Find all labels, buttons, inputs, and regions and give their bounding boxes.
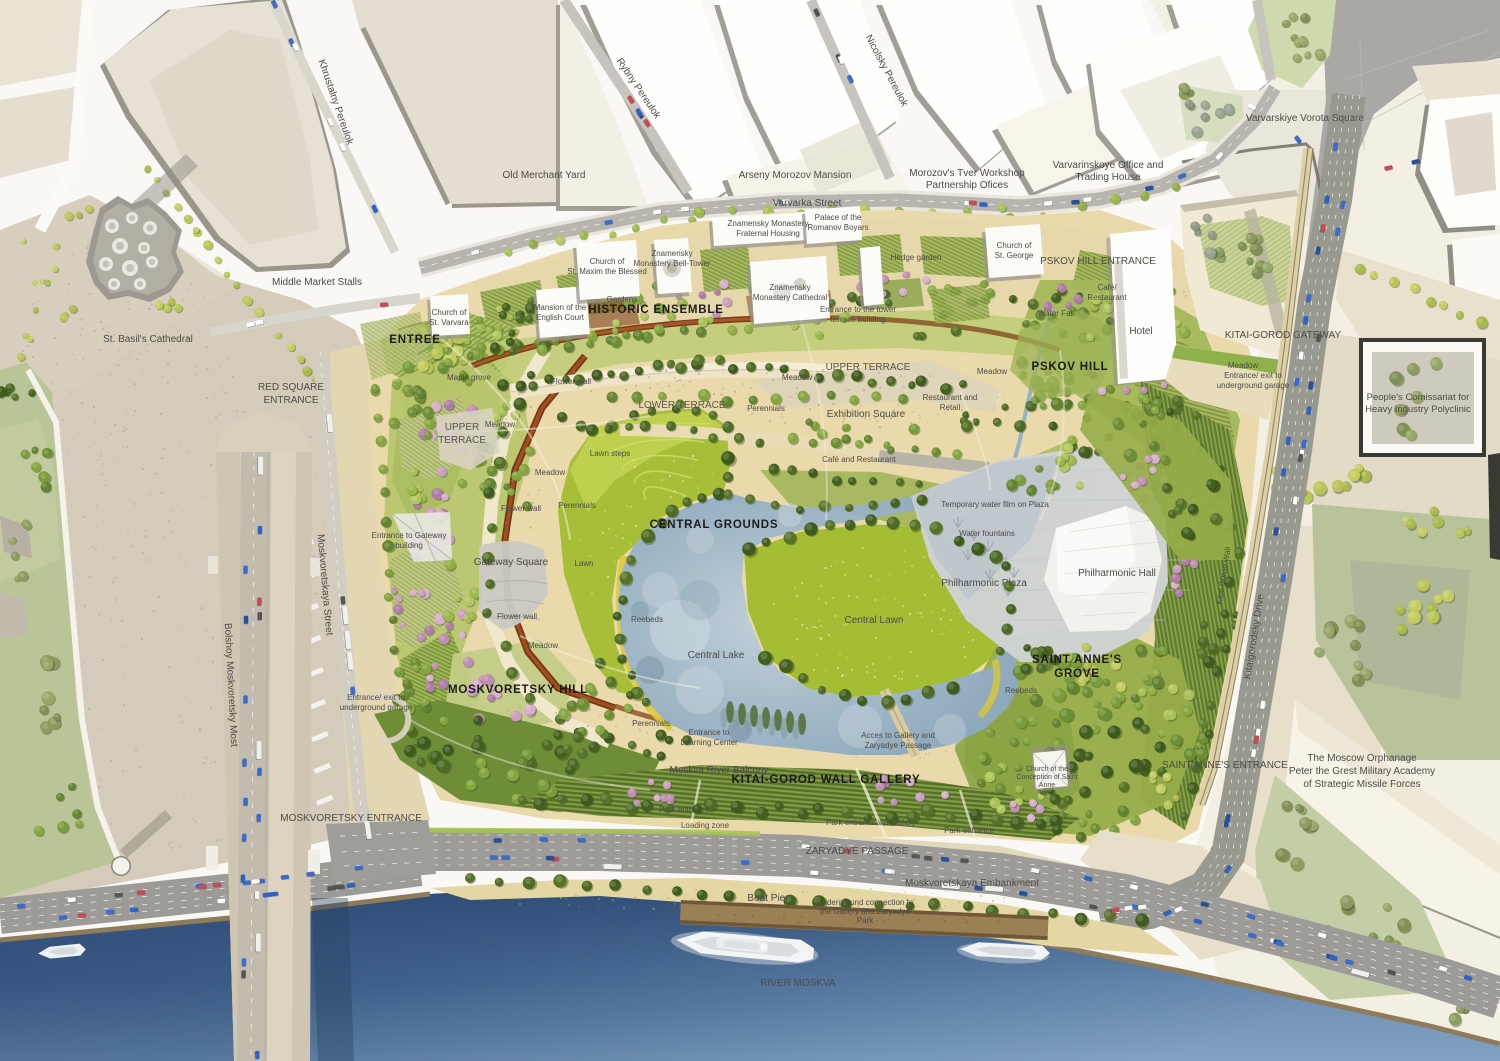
svg-text:Monastery Cathedral: Monastery Cathedral — [753, 293, 827, 302]
svg-text:Moskva River Balcony: Moskva River Balcony — [670, 765, 769, 776]
svg-text:Hedge garden: Hedge garden — [891, 253, 942, 262]
svg-text:UPPER: UPPER — [445, 422, 479, 433]
svg-text:Gateway Square: Gateway Square — [474, 557, 549, 568]
svg-text:Znamensky Monastery: Znamensky Monastery — [728, 219, 809, 228]
svg-text:Learning Center: Learning Center — [680, 738, 738, 747]
svg-text:Perennials: Perennials — [558, 501, 596, 510]
svg-text:Old Merchant Yard: Old Merchant Yard — [502, 170, 585, 181]
svg-text:Perennials: Perennials — [632, 719, 670, 728]
svg-text:Perennials: Perennials — [747, 404, 785, 413]
svg-text:Café/: Café/ — [1097, 283, 1117, 292]
svg-text:Reebeds: Reebeds — [631, 615, 663, 624]
svg-text:Meadow: Meadow — [782, 373, 812, 382]
svg-text:Restaurant: Restaurant — [1087, 293, 1127, 302]
svg-text:Palace of the: Palace of the — [815, 213, 862, 222]
svg-text:ENTRANCE: ENTRANCE — [263, 395, 318, 406]
svg-text:Lawn: Lawn — [574, 559, 593, 568]
svg-text:terrace building: terrace building — [831, 315, 886, 324]
svg-text:Gardens: Gardens — [607, 295, 638, 304]
svg-text:Acces to Gallery and: Acces to Gallery and — [861, 731, 935, 740]
svg-text:Restaurant and: Restaurant and — [923, 393, 978, 402]
svg-text:CENTRAL GROUNDS: CENTRAL GROUNDS — [650, 519, 779, 531]
svg-text:Philharmonic Hall: Philharmonic Hall — [1078, 568, 1156, 579]
svg-text:Exhibition Square: Exhibition Square — [827, 409, 906, 420]
svg-text:Varvarinskoye Office and: Varvarinskoye Office and — [1053, 160, 1164, 171]
svg-text:UPPER TERRACE: UPPER TERRACE — [826, 362, 911, 373]
svg-text:Church of: Church of — [997, 241, 1032, 250]
svg-text:Fraternal Housing: Fraternal Housing — [736, 229, 800, 238]
svg-text:Arseny Morozov Mansion: Arseny Morozov Mansion — [739, 170, 852, 181]
svg-text:Hotel: Hotel — [1129, 326, 1152, 337]
svg-text:Morozov's Tver Workshop: Morozov's Tver Workshop — [909, 168, 1025, 179]
svg-text:PSKOV HILL: PSKOV HILL — [1031, 361, 1108, 373]
svg-text:Middle Market Stalls: Middle Market Stalls — [272, 277, 362, 288]
svg-text:MOSKVORETSKY HILL: MOSKVORETSKY HILL — [448, 684, 588, 696]
svg-text:Meadow: Meadow — [535, 468, 565, 477]
svg-text:Flower wall: Flower wall — [551, 377, 591, 386]
svg-text:RED SQUARE: RED SQUARE — [258, 382, 324, 393]
svg-text:Central Lawn: Central Lawn — [845, 615, 904, 626]
svg-text:St. Basil's Cathedral: St. Basil's Cathedral — [103, 334, 193, 345]
svg-text:Church of: Church of — [432, 308, 467, 317]
svg-text:Trading House: Trading House — [1075, 172, 1141, 183]
svg-text:Reebeds: Reebeds — [1005, 686, 1037, 695]
svg-text:Retail: Retail — [940, 403, 961, 412]
svg-text:Water fountains: Water fountains — [959, 529, 1015, 538]
svg-text:GROVE: GROVE — [1054, 668, 1100, 680]
svg-text:PSKOV HILL ENTRANCE: PSKOV HILL ENTRANCE — [1040, 256, 1156, 267]
svg-text:Flower wall: Flower wall — [501, 504, 541, 513]
svg-text:Znamensky: Znamensky — [651, 249, 692, 258]
svg-text:ENTREE: ENTREE — [389, 334, 440, 346]
svg-text:Flower wall: Flower wall — [497, 612, 537, 621]
svg-text:English Court: English Court — [536, 313, 585, 322]
svg-text:Znamensky: Znamensky — [769, 283, 810, 292]
svg-text:Café and Restaurant: Café and Restaurant — [822, 455, 897, 464]
svg-text:St. Varvara: St. Varvara — [429, 318, 469, 327]
svg-text:HISTORIC ENSEMBLE: HISTORIC ENSEMBLE — [588, 304, 723, 316]
svg-text:St. George: St. George — [995, 251, 1034, 260]
svg-text:Meadow: Meadow — [528, 641, 558, 650]
svg-text:SAINT ANNE'S: SAINT ANNE'S — [1032, 654, 1122, 666]
svg-text:Church of: Church of — [590, 257, 625, 266]
svg-text:Varvarka Street: Varvarka Street — [773, 198, 842, 209]
svg-text:Monastery Bell-Tower: Monastery Bell-Tower — [634, 259, 711, 268]
svg-text:Meadow: Meadow — [1228, 361, 1258, 370]
svg-text:Temporary water film on Plaza: Temporary water film on Plaza — [941, 500, 1049, 509]
svg-text:Varvarskiye Vorota Square: Varvarskiye Vorota Square — [1246, 113, 1365, 124]
svg-text:Philharmonic Plaza: Philharmonic Plaza — [941, 578, 1027, 589]
svg-text:Church of the: Church of the — [1026, 766, 1068, 773]
svg-text:St. Maxim the Blessed: St. Maxim the Blessed — [567, 267, 647, 276]
svg-text:Meadow: Meadow — [977, 367, 1007, 376]
svg-text:Partnership Ofices: Partnership Ofices — [926, 180, 1008, 191]
svg-text:Meadow: Meadow — [485, 420, 515, 429]
svg-text:Mansion of the: Mansion of the — [534, 303, 587, 312]
svg-text:LOWER TERRACE: LOWER TERRACE — [638, 400, 725, 411]
svg-text:Maple grove: Maple grove — [447, 373, 492, 382]
svg-text:Entrance to: Entrance to — [689, 728, 730, 737]
svg-text:Central Lake: Central Lake — [688, 650, 745, 661]
svg-text:Water Fall: Water Fall — [1038, 309, 1074, 318]
svg-text:Romanov Boyars: Romanov Boyars — [807, 223, 868, 232]
svg-text:Entrance to the tower: Entrance to the tower — [820, 305, 896, 314]
svg-text:Lawn steps: Lawn steps — [590, 449, 630, 458]
svg-text:TERRACE: TERRACE — [438, 435, 486, 446]
svg-text:Zaryadye Passage: Zaryadye Passage — [865, 741, 932, 750]
svg-text:KITAI-GOROD GATEWAY: KITAI-GOROD GATEWAY — [1225, 330, 1342, 341]
